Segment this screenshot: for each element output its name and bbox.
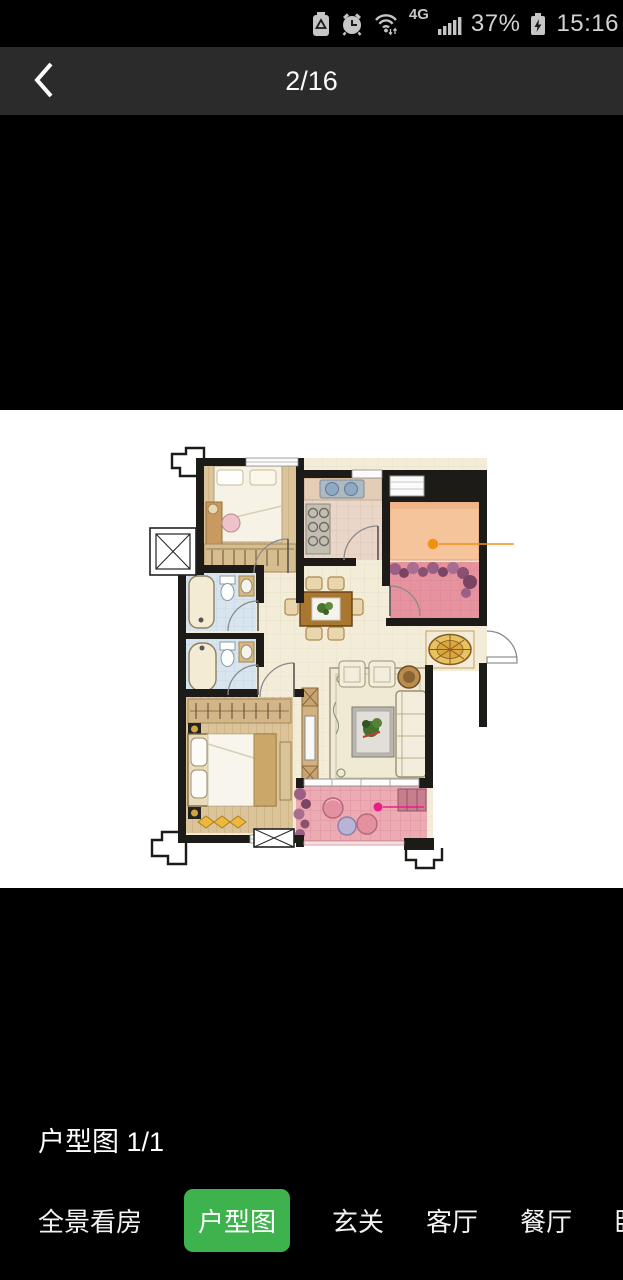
phone-screen: 4G 37% 15:16 2/16: [0, 0, 623, 1280]
room-kitchen: [304, 478, 382, 560]
battery-percent-label: 37%: [471, 10, 521, 38]
tab-floorplan[interactable]: 户型图: [184, 1189, 290, 1252]
bathroom-1: [186, 573, 256, 631]
tab-bedroom[interactable]: 卧: [614, 1202, 623, 1239]
status-bar: 4G 37% 15:16: [0, 0, 623, 47]
floor-plan-image: [0, 410, 623, 888]
room-balcony: [294, 786, 428, 841]
hotspot-magenta[interactable]: [374, 803, 383, 812]
battery-saver-icon: [311, 11, 331, 37]
back-button[interactable]: [22, 59, 66, 103]
alarm-icon: [339, 11, 365, 37]
decor-diamonds: [198, 816, 246, 828]
photo-caption: 户型图 1/1: [38, 1120, 164, 1159]
room-second-bedroom: [204, 466, 296, 572]
hotspot-orange[interactable]: [428, 539, 438, 549]
tab-panorama[interactable]: 全景看房: [38, 1202, 142, 1239]
tab-entryway[interactable]: 玄关: [332, 1202, 384, 1239]
network-type-label: 4G: [409, 6, 429, 23]
room-garden-balcony: [389, 562, 479, 618]
back-chevron-icon: [32, 60, 56, 103]
category-tab-bar: 全景看房 户型图 玄关 客厅 餐厅 卧: [0, 1184, 623, 1256]
tab-diningroom[interactable]: 餐厅: [520, 1202, 572, 1239]
tab-livingroom[interactable]: 客厅: [426, 1202, 478, 1239]
room-master-bedroom: [186, 697, 293, 833]
page-indicator: 2/16: [0, 47, 623, 115]
clock-label: 15:16: [556, 10, 619, 38]
signal-icon: [437, 11, 463, 37]
room-flex-orange: [390, 502, 479, 560]
app-bar: 2/16: [0, 47, 623, 115]
floor-plan: [150, 448, 517, 868]
battery-charging-icon: [528, 10, 548, 38]
wifi-icon: [373, 11, 401, 37]
photo-viewer[interactable]: [0, 410, 623, 888]
